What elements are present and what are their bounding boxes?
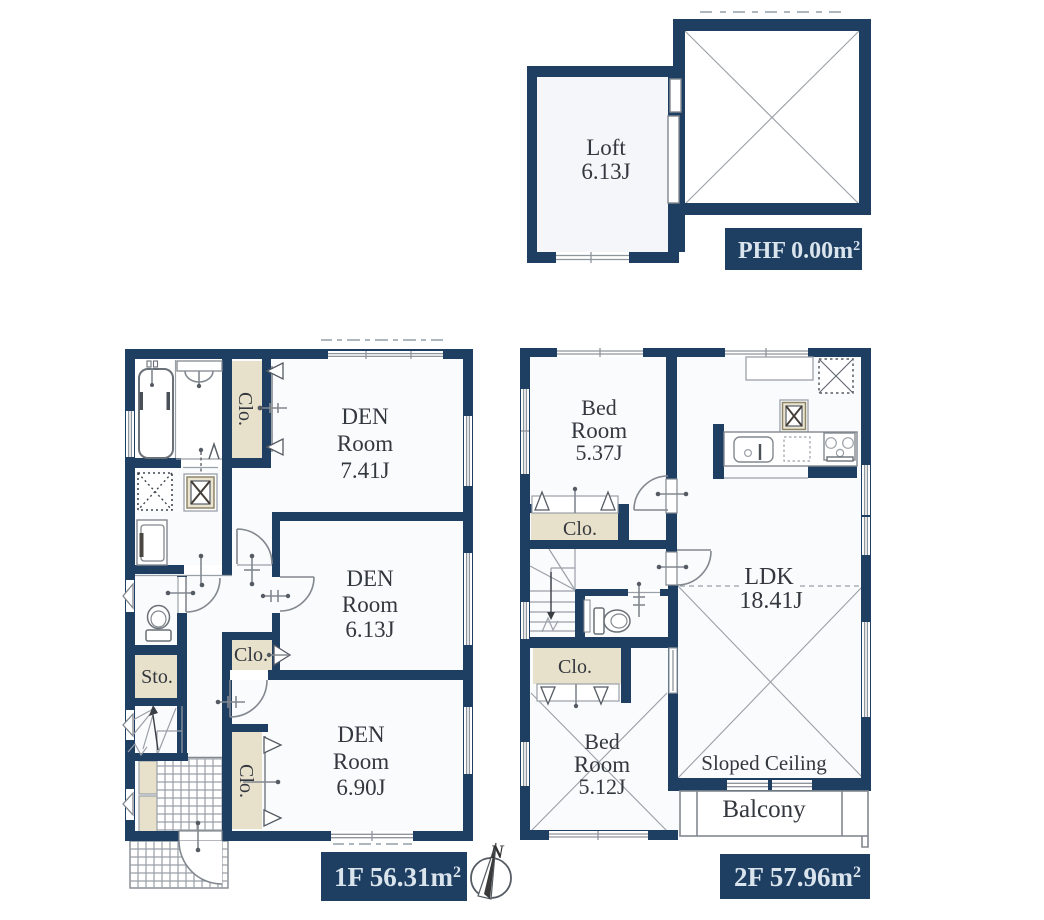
svg-text:Clo.: Clo.	[235, 764, 257, 798]
svg-text:Room: Room	[333, 749, 389, 774]
svg-text:5.12J: 5.12J	[578, 774, 626, 799]
svg-text:N: N	[489, 842, 505, 863]
svg-text:Clo.: Clo.	[234, 392, 256, 426]
svg-text:2F 57.96m2: 2F 57.96m2	[734, 862, 861, 892]
svg-text:DEN: DEN	[346, 566, 394, 591]
svg-text:Bed: Bed	[584, 729, 619, 754]
svg-text:6.13J: 6.13J	[581, 159, 630, 184]
svg-text:6.13J: 6.13J	[345, 617, 394, 642]
svg-text:DEN: DEN	[337, 722, 385, 747]
svg-text:LDK: LDK	[744, 564, 794, 590]
svg-text:Loft: Loft	[586, 135, 626, 160]
svg-text:PHF 0.00m2: PHF 0.00m2	[738, 238, 860, 264]
svg-text:Bed: Bed	[581, 395, 616, 420]
svg-text:Balcony: Balcony	[722, 796, 806, 823]
svg-text:Room: Room	[342, 592, 398, 617]
svg-text:Clo.: Clo.	[558, 656, 592, 678]
svg-text:7.41J: 7.41J	[340, 458, 389, 483]
svg-text:Sto.: Sto.	[141, 666, 173, 688]
svg-text:Clo.: Clo.	[234, 644, 268, 666]
svg-text:Sloped Ceiling: Sloped Ceiling	[701, 751, 827, 775]
svg-text:Clo.: Clo.	[563, 518, 597, 540]
svg-text:18.41J: 18.41J	[739, 588, 802, 614]
svg-text:5.37J: 5.37J	[575, 440, 623, 465]
svg-text:Room: Room	[337, 431, 393, 456]
svg-text:6.90J: 6.90J	[336, 775, 385, 800]
svg-text:1F 56.31m2: 1F 56.31m2	[334, 862, 461, 892]
svg-text:DEN: DEN	[341, 404, 389, 429]
